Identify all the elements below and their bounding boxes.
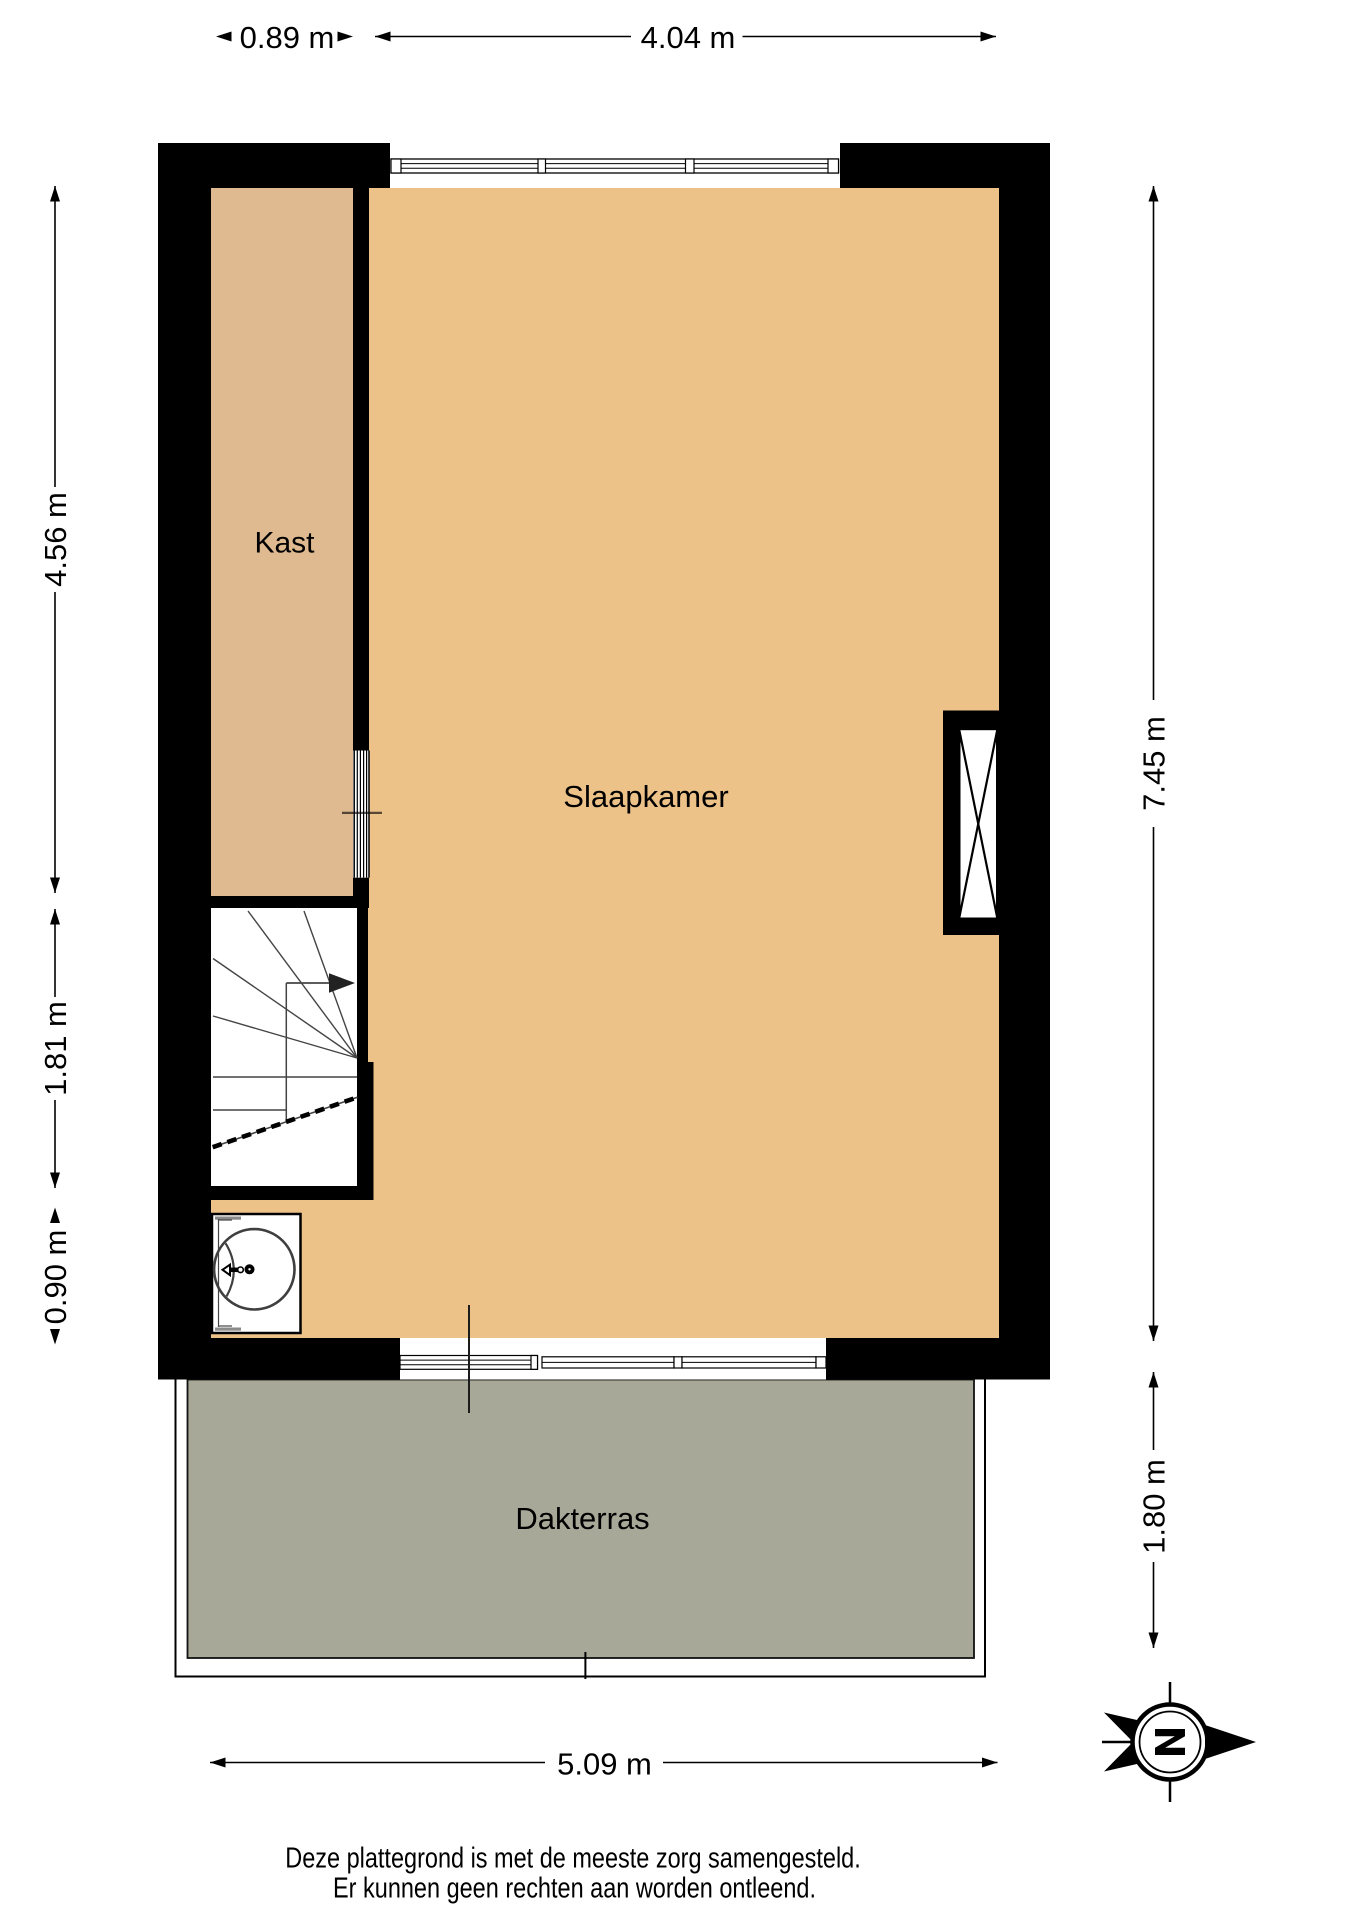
svg-text:Kast: Kast — [254, 527, 315, 560]
svg-text:0.89 m: 0.89 m — [240, 20, 335, 55]
svg-text:Deze plattegrond is met de mee: Deze plattegrond is met de meeste zorg s… — [285, 1841, 861, 1874]
svg-text:0.90 m: 0.90 m — [38, 1230, 73, 1325]
svg-text:1.81 m: 1.81 m — [38, 1001, 73, 1096]
svg-text:4.56 m: 4.56 m — [38, 492, 73, 587]
svg-text:4.04 m: 4.04 m — [641, 20, 736, 55]
svg-text:1.80 m: 1.80 m — [1137, 1459, 1172, 1554]
svg-text:7.45 m: 7.45 m — [1137, 716, 1172, 811]
svg-text:Er kunnen geen rechten aan wor: Er kunnen geen rechten aan worden ontlee… — [333, 1871, 816, 1904]
svg-text:5.09 m: 5.09 m — [557, 1747, 652, 1782]
svg-text:Slaapkamer: Slaapkamer — [563, 779, 728, 814]
svg-text:Dakterras: Dakterras — [515, 1501, 649, 1536]
